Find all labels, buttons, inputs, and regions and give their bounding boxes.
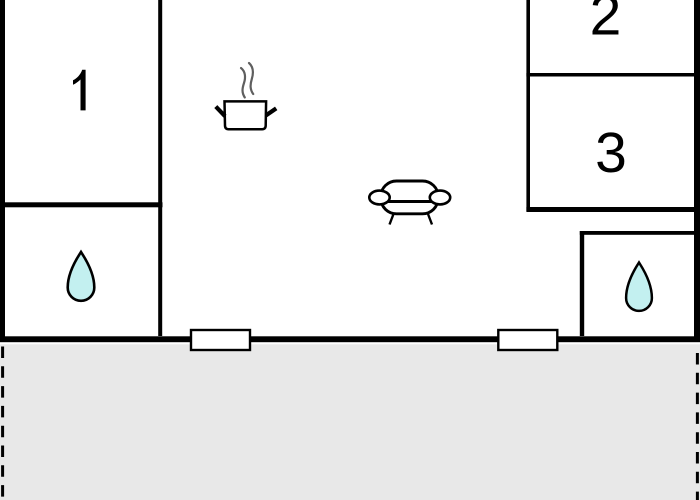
svg-text:3: 3 — [595, 121, 627, 185]
svg-text:2: 2 — [590, 0, 622, 48]
